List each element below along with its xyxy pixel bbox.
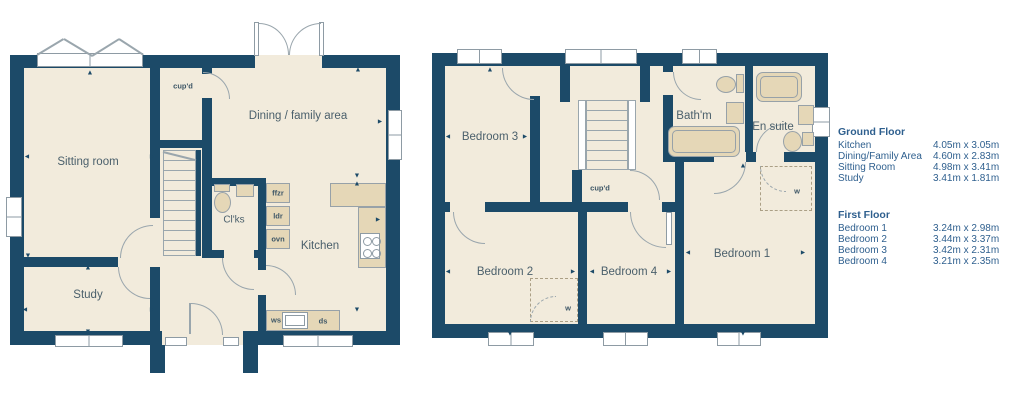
window [283, 335, 353, 347]
room-label-cupboard: cup'd [173, 82, 193, 91]
toilet-icon [736, 74, 744, 93]
room-label-ensuite: En suite [752, 121, 794, 133]
door-step [165, 337, 187, 346]
staircase [163, 150, 196, 256]
legend-room: Dining/Family Area [838, 151, 933, 162]
room-label-dining: Dining / family area [249, 110, 347, 122]
legend-size: 3.24m x 2.98m [933, 223, 999, 234]
wall [572, 170, 582, 212]
dimension-arrow: ◄ [589, 269, 596, 276]
toilet-icon [214, 184, 230, 192]
dimension-arrow: ► [570, 269, 577, 276]
legend-size: 4.05m x 3.05m [933, 140, 999, 151]
legend-room: Bedroom 3 [838, 245, 933, 256]
hob-icon [360, 233, 380, 259]
stair-rail [628, 100, 636, 170]
window [55, 335, 123, 347]
legend-size: 3.41m x 1.81m [933, 173, 999, 184]
wall [24, 257, 118, 267]
toilet-icon [783, 131, 802, 152]
legend-row: Kitchen 4.05m x 3.05m [838, 140, 1008, 151]
shower-icon [756, 72, 802, 102]
dimension-arrow: ► [149, 307, 156, 314]
legend-row: Sitting Room 4.98m x 3.41m [838, 162, 1008, 173]
wall [663, 66, 673, 72]
room-label-bathroom: Bath'm [676, 110, 711, 122]
dimensions-legend: Ground Floor Kitchen 4.05m x 3.05m Dinin… [838, 126, 1008, 267]
dimension-arrow: ▲ [487, 67, 494, 74]
dimension-arrow: ▲ [85, 265, 92, 272]
wall [640, 66, 650, 102]
worktop-label: ws [271, 316, 281, 325]
dimension-arrow: ▼ [354, 307, 361, 314]
dimension-arrow: ▲ [355, 67, 362, 74]
stair-rail [196, 150, 201, 256]
wardrobe-label: w [794, 187, 800, 196]
wall [432, 202, 450, 212]
dimension-arrow: ◄ [22, 307, 29, 314]
wall [784, 152, 828, 162]
wall [675, 212, 684, 324]
dimension-arrow: ▼ [354, 173, 361, 180]
floorplan-canvas: Sitting room Study cup'd Dining / family… [0, 0, 1024, 407]
sink-icon [282, 312, 308, 329]
porch-pillar [150, 345, 165, 373]
window [388, 110, 402, 160]
room-label-study: Study [73, 289, 102, 301]
legend-room: Bedroom 1 [838, 223, 933, 234]
legend-row: Study 3.41m x 1.81m [838, 173, 1008, 184]
dimension-arrow: ► [375, 217, 382, 224]
dimension-arrow: ◄ [204, 119, 211, 126]
dishwasher-label: ds [319, 317, 328, 326]
dimension-arrow: ▼ [85, 329, 92, 336]
window [682, 49, 717, 64]
window [603, 332, 648, 346]
window [457, 49, 502, 64]
dimension-arrow: ▼ [25, 253, 32, 260]
legend-size: 4.98m x 3.41m [933, 162, 999, 173]
room-label-bedroom1: Bedroom 1 [714, 248, 770, 260]
legend-ground-floor-title: Ground Floor [838, 126, 1008, 138]
room-label-bedroom4: Bedroom 4 [601, 266, 657, 278]
legend-room: Sitting Room [838, 162, 933, 173]
wall [530, 96, 540, 212]
legend-row: Bedroom 3 3.42m x 2.31m [838, 245, 1008, 256]
oven-label: ovn [271, 235, 284, 244]
wall [745, 66, 753, 152]
freezer-label: ffzr [272, 189, 284, 198]
stair-rail [578, 100, 586, 170]
toilet-icon [802, 132, 814, 146]
room-label-kitchen: Kitchen [301, 240, 339, 252]
wall [746, 152, 756, 162]
legend-row: Bedroom 1 3.24m x 2.98m [838, 223, 1008, 234]
wall [258, 295, 266, 331]
dimension-arrow: ► [149, 154, 156, 161]
legend-size: 3.44m x 3.37m [933, 234, 999, 245]
sink-icon [798, 105, 814, 125]
wall [815, 53, 828, 338]
wall [675, 162, 684, 212]
door-swing-arc [289, 23, 321, 55]
window [565, 49, 637, 64]
dimension-arrow: ◄ [24, 154, 31, 161]
legend-size: 4.60m x 2.83m [933, 151, 999, 162]
legend-size: 3.21m x 2.35m [933, 256, 999, 267]
dimension-arrow: ► [666, 269, 673, 276]
sink-icon [726, 102, 744, 124]
dimension-arrow: ◄ [258, 213, 265, 220]
toilet-icon [214, 192, 231, 213]
dimension-arrow: ► [522, 134, 529, 141]
legend-first-floor-title: First Floor [838, 209, 1008, 221]
larder-label: ldr [273, 212, 283, 221]
legend-ground-floor: Ground Floor Kitchen 4.05m x 3.05m Dinin… [838, 126, 1008, 184]
room-label-cloakroom: Cl'ks [223, 215, 244, 226]
dimension-arrow: ▲ [740, 163, 747, 170]
dimension-arrow: ▼ [598, 331, 605, 338]
wardrobe-label: w [565, 304, 571, 313]
door-leaf [666, 212, 672, 245]
wall [560, 66, 570, 102]
wall [254, 250, 266, 258]
legend-room: Bedroom 4 [838, 256, 933, 267]
dimension-arrow: ► [377, 119, 384, 126]
porch-pillar [243, 345, 258, 373]
room-label-cupboard: cup'd [590, 184, 610, 193]
dimension-arrow: ▲ [354, 181, 361, 188]
first-floor-plan: Bedroom 3 Bath'm En suite cup'd Bedroom … [432, 45, 836, 365]
room-label-bedroom2: Bedroom 2 [477, 266, 533, 278]
wall [578, 212, 587, 324]
legend-room: Bedroom 2 [838, 234, 933, 245]
bath-icon [668, 126, 740, 157]
dimension-arrow: ◄ [445, 134, 452, 141]
wall [202, 250, 224, 258]
window [812, 107, 830, 137]
dimension-arrow: ▼ [507, 331, 514, 338]
staircase [586, 100, 628, 170]
door-swing-arc [259, 23, 289, 55]
door-opening [255, 55, 322, 68]
dimension-arrow: ▼ [740, 331, 747, 338]
legend-room: Study [838, 173, 933, 184]
wall [258, 258, 266, 270]
legend-size: 3.42m x 2.31m [933, 245, 999, 256]
wall [432, 53, 445, 338]
wall [150, 68, 160, 218]
dimension-arrow: ◄ [445, 269, 452, 276]
door-step [223, 337, 239, 346]
wall [386, 55, 400, 345]
wall [150, 267, 160, 331]
legend-first-floor: First Floor Bedroom 1 3.24m x 2.98m Bedr… [838, 209, 1008, 267]
dimension-arrow: ◄ [685, 250, 692, 257]
legend-room: Kitchen [838, 140, 933, 151]
ground-floor-plan: Sitting room Study cup'd Dining / family… [10, 20, 414, 400]
dimension-arrow: ▲ [507, 204, 514, 211]
legend-row: Dining/Family Area 4.60m x 2.83m [838, 151, 1008, 162]
sink-icon [236, 184, 254, 197]
window [6, 197, 22, 237]
legend-row: Bedroom 2 3.44m x 3.37m [838, 234, 1008, 245]
dimension-arrow: ► [800, 250, 807, 257]
room-label-bedroom3: Bedroom 3 [462, 131, 518, 143]
room-label-sitting-room: Sitting room [57, 156, 118, 168]
dimension-arrow: ▲ [87, 70, 94, 77]
toilet-icon [716, 76, 736, 93]
legend-row: Bedroom 4 3.21m x 2.35m [838, 256, 1008, 267]
